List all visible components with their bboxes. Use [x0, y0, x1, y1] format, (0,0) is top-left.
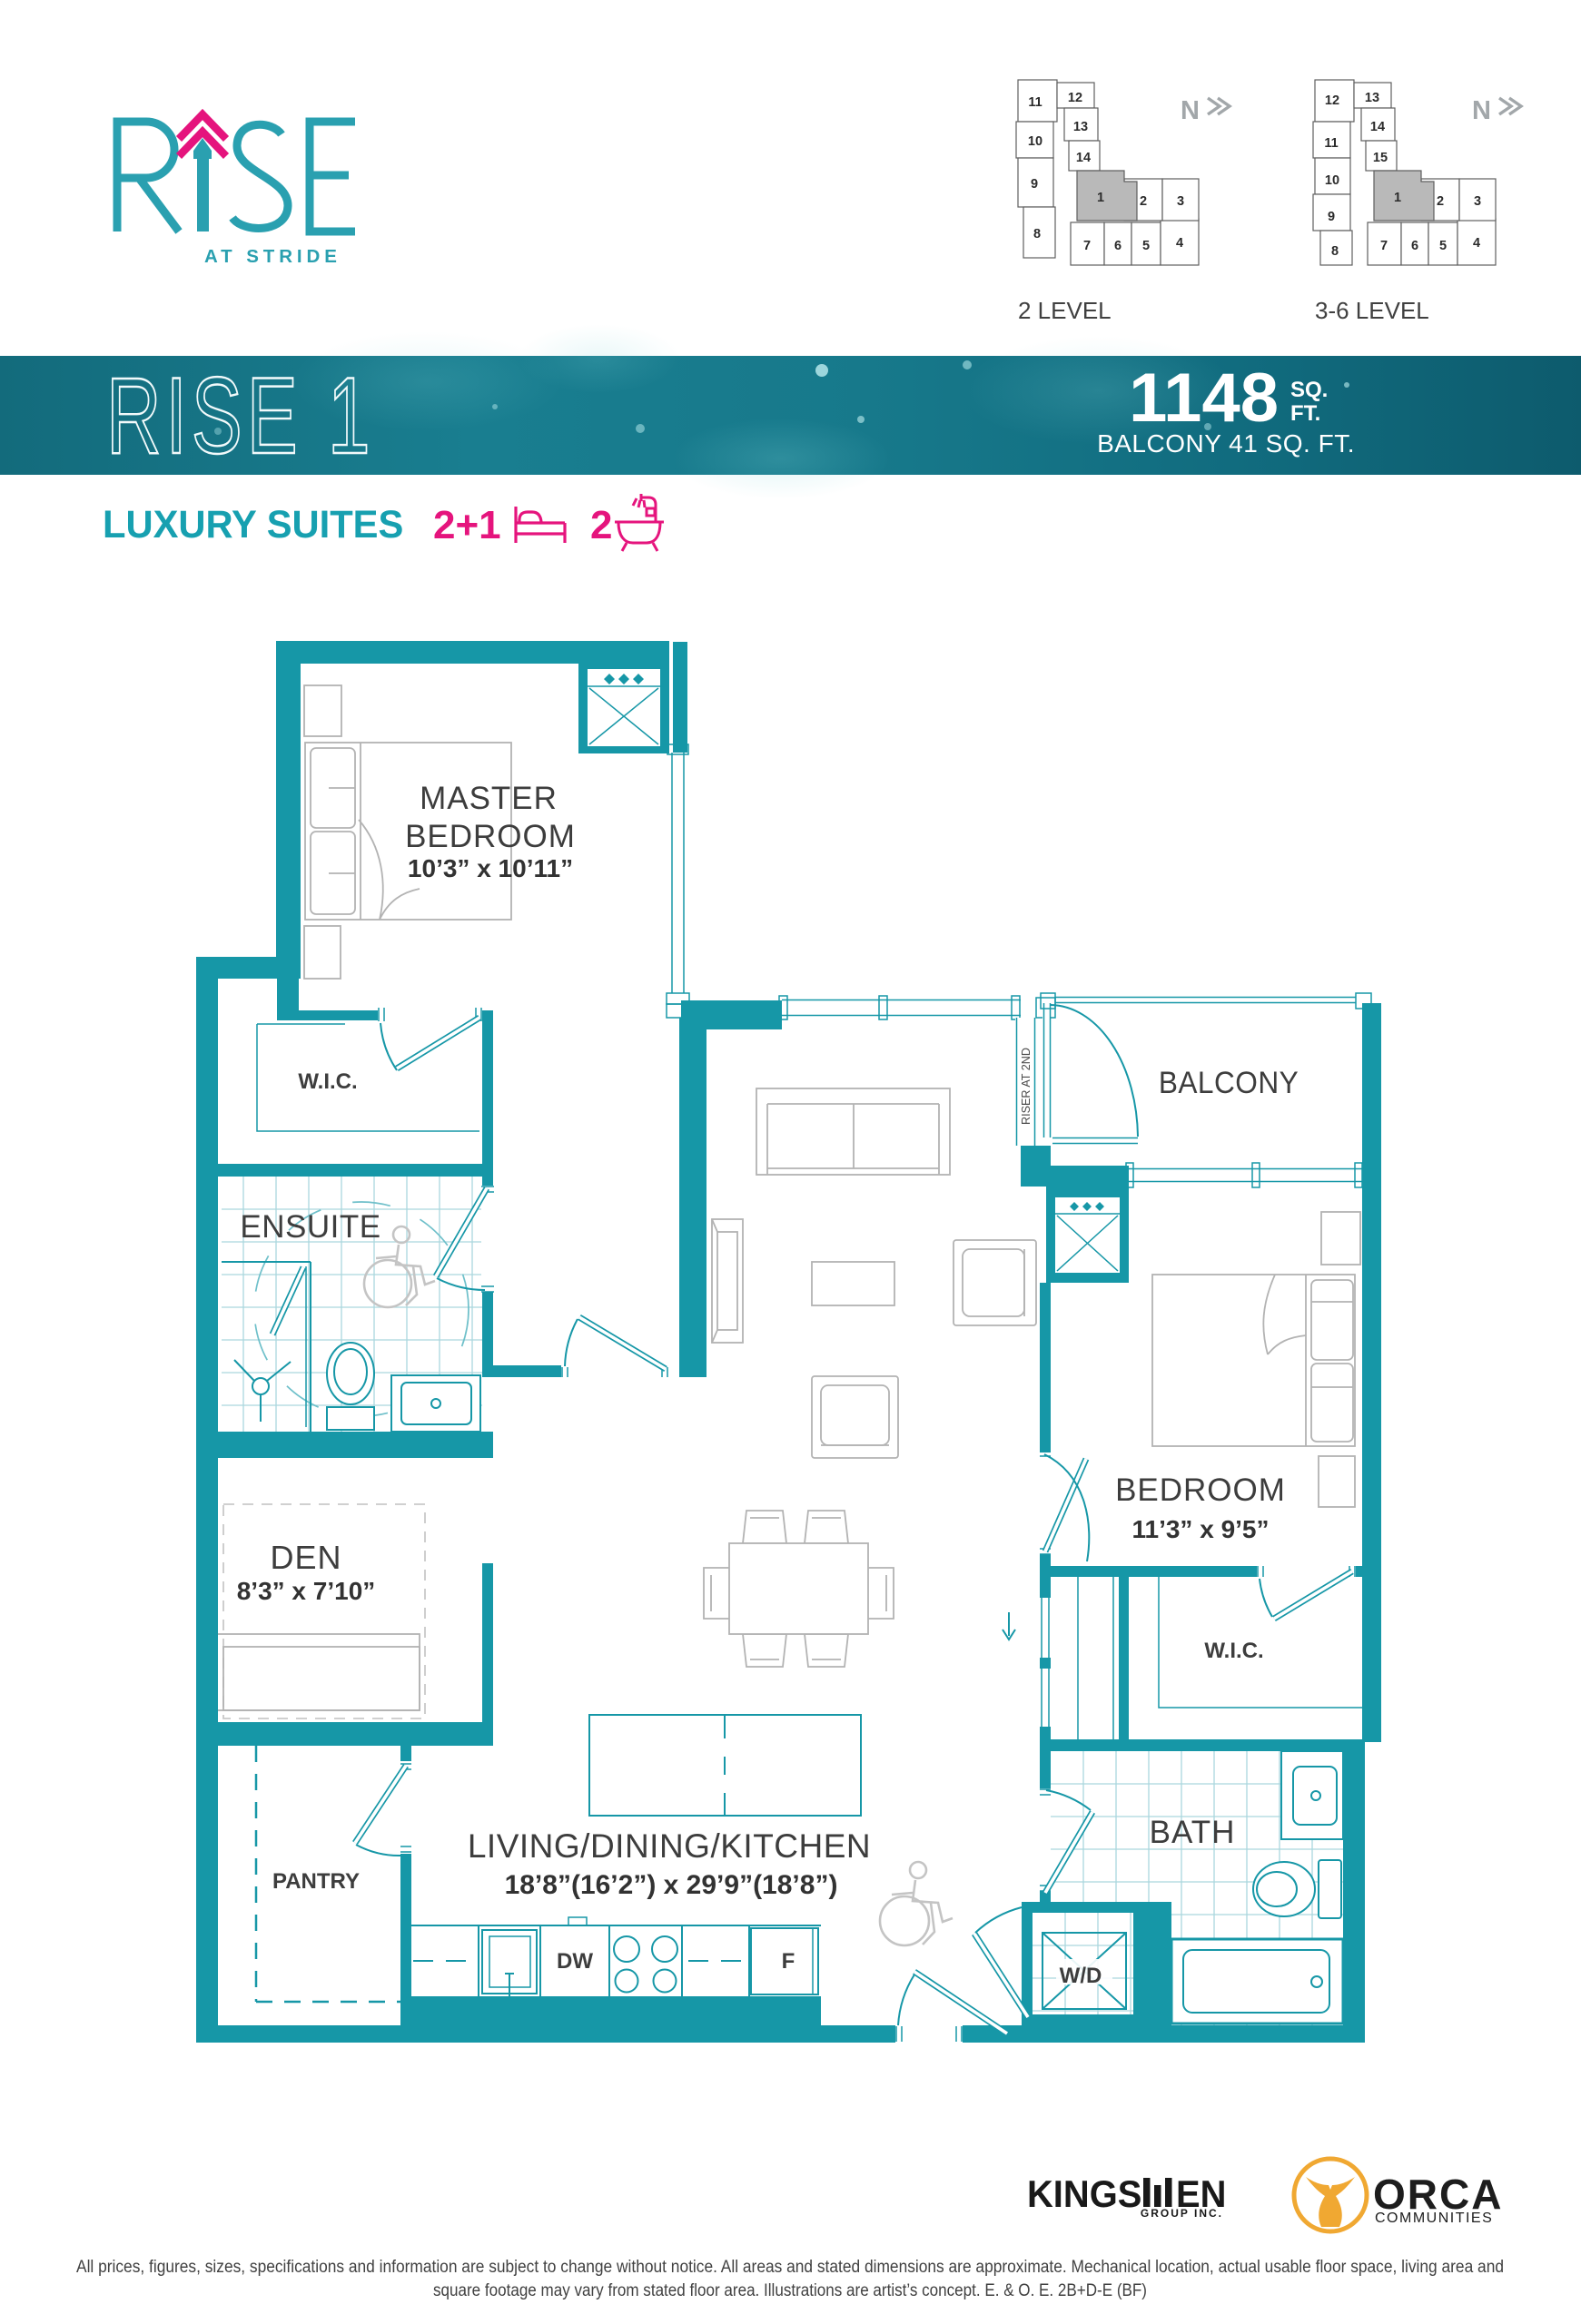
svg-text:9: 9 — [1328, 210, 1335, 224]
svg-text:4: 4 — [1473, 236, 1480, 251]
svg-text:N: N — [1472, 96, 1491, 125]
svg-text:8: 8 — [1033, 227, 1041, 241]
svg-text:BEDROOM: BEDROOM — [405, 819, 576, 854]
svg-text:13: 13 — [1365, 91, 1379, 105]
svg-text:W.I.C.: W.I.C. — [298, 1069, 357, 1094]
svg-text:10: 10 — [1325, 173, 1339, 188]
svg-text:13: 13 — [1073, 120, 1088, 134]
svg-text:N: N — [1181, 96, 1200, 125]
svg-text:5: 5 — [1142, 239, 1150, 253]
svg-text:W.I.C.: W.I.C. — [1204, 1639, 1263, 1663]
svg-text:14: 14 — [1370, 120, 1385, 134]
svg-text:square footage may vary from s: square footage may vary from stated floo… — [433, 2281, 1147, 2300]
svg-text:10: 10 — [1028, 134, 1042, 149]
svg-text:MASTER: MASTER — [420, 781, 558, 816]
svg-text:SQ.: SQ. — [1290, 378, 1328, 402]
svg-text:1: 1 — [1097, 191, 1104, 205]
svg-text:11: 11 — [1028, 95, 1042, 110]
svg-text:4: 4 — [1176, 236, 1183, 251]
svg-text:10’3” x 10’11”: 10’3” x 10’11” — [408, 854, 573, 882]
svg-text:BATH: BATH — [1150, 1815, 1236, 1850]
svg-text:AT STRIDE: AT STRIDE — [204, 246, 341, 267]
svg-text:2+1: 2+1 — [433, 503, 501, 547]
svg-text:15: 15 — [1373, 151, 1388, 165]
svg-text:GROUP INC.: GROUP INC. — [1141, 2207, 1223, 2220]
svg-text:8’3” x 7’10”: 8’3” x 7’10” — [237, 1577, 376, 1605]
svg-text:RISE 1: RISE 1 — [106, 354, 374, 476]
svg-text:12: 12 — [1068, 91, 1082, 105]
svg-text:11: 11 — [1324, 136, 1338, 151]
svg-text:FT.: FT. — [1290, 401, 1320, 426]
svg-text:7: 7 — [1083, 239, 1091, 253]
svg-text:8: 8 — [1331, 244, 1339, 259]
svg-text:LIVING/DINING/KITCHEN: LIVING/DINING/KITCHEN — [468, 1827, 871, 1865]
svg-text:3-6 LEVEL: 3-6 LEVEL — [1315, 297, 1429, 324]
svg-text:DEN: DEN — [270, 1539, 341, 1576]
svg-text:14: 14 — [1076, 151, 1091, 165]
svg-text:2: 2 — [590, 503, 612, 547]
svg-text:W/D: W/D — [1060, 1964, 1102, 1988]
svg-text:LUXURY SUITES: LUXURY SUITES — [103, 502, 403, 546]
svg-text:5: 5 — [1439, 239, 1447, 253]
svg-text:3: 3 — [1474, 194, 1481, 209]
svg-text:BALCONY: BALCONY — [1159, 1065, 1299, 1099]
svg-text:12: 12 — [1325, 94, 1339, 108]
svg-text:All prices, figures, sizes, sp: All prices, figures, sizes, specificatio… — [76, 2258, 1504, 2277]
svg-text:11’3” x 9’5”: 11’3” x 9’5” — [1131, 1515, 1269, 1543]
svg-text:7: 7 — [1380, 239, 1388, 253]
svg-text:ENSUITE: ENSUITE — [240, 1209, 380, 1245]
svg-text:DW: DW — [557, 1949, 593, 1974]
svg-text:BEDROOM: BEDROOM — [1115, 1472, 1286, 1508]
svg-text:3: 3 — [1177, 194, 1184, 209]
svg-text:2 LEVEL: 2 LEVEL — [1018, 297, 1112, 324]
svg-text:6: 6 — [1114, 239, 1122, 253]
svg-text:18’8”(16’2”) x 29’9”(18’8”): 18’8”(16’2”) x 29’9”(18’8”) — [505, 1870, 838, 1900]
svg-text:6: 6 — [1411, 239, 1418, 253]
svg-text:F: F — [782, 1949, 795, 1974]
svg-text:1: 1 — [1394, 191, 1401, 205]
svg-text:2: 2 — [1437, 194, 1444, 209]
svg-text:2: 2 — [1140, 194, 1147, 209]
svg-text:BALCONY 41 SQ. FT.: BALCONY 41 SQ. FT. — [1097, 429, 1355, 458]
svg-text:9: 9 — [1031, 177, 1038, 192]
svg-text:1148: 1148 — [1129, 359, 1279, 437]
svg-text:PANTRY: PANTRY — [272, 1869, 360, 1894]
svg-text:RISER AT 2ND: RISER AT 2ND — [1019, 1048, 1033, 1125]
svg-text:COMMUNITIES: COMMUNITIES — [1375, 2211, 1493, 2226]
svg-text:KINGS: KINGS — [1027, 2172, 1141, 2215]
